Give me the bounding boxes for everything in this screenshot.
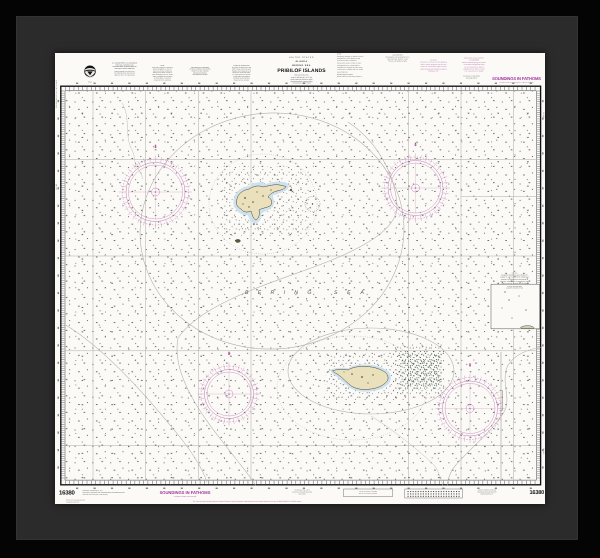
svg-text:NATIONAL OCEAN SERVICE: NATIONAL OCEAN SERVICE: [477, 492, 496, 494]
svg-text:Continued on chart 16381: Continued on chart 16381: [463, 75, 480, 78]
svg-text:NOAA: NOAA: [88, 81, 92, 83]
svg-text:Printed on recycled paper with: Printed on recycled paper with: [66, 500, 85, 502]
svg-text:RADIO AND LOCAL NOTICE: RADIO AND LOCAL NOTICE: [464, 57, 484, 60]
svg-text:BERING: BERING: [245, 290, 321, 296]
svg-text:16380: 16380: [542, 448, 545, 455]
svg-text:SOUNDINGS IN FATHOMS: SOUNDINGS IN FATHOMS: [191, 67, 209, 69]
svg-text:AT MEAN LOWER LOW WATER: AT MEAN LOWER LOW WATER: [174, 495, 197, 498]
svg-text:16380: 16380: [59, 490, 76, 497]
svg-text:vegetable based inks: vegetable based inks: [66, 502, 79, 504]
svg-text:SOUNDINGS IN FATHOMS: SOUNDINGS IN FATHOMS: [160, 490, 211, 495]
svg-text:First Edition Feb. 1977: First Edition Feb. 1977: [294, 489, 309, 492]
svg-text:This chart has been produced b: This chart has been produced by the Nati…: [193, 500, 302, 503]
svg-text:from the Coast Survey website: from the Coast Survey website: [359, 493, 378, 495]
svg-text:NOTE: NOTE: [337, 53, 341, 56]
svg-text:A list of corrections is avail: A list of corrections is available: [359, 491, 378, 493]
svg-text:16380: 16380: [542, 112, 545, 119]
svg-text:SOUNDINGS IN FATHOMS: SOUNDINGS IN FATHOMS: [492, 76, 541, 81]
svg-text:PLANE OF REFERENCE: PLANE OF REFERENCE: [233, 65, 249, 67]
svg-text:AUTHORITIES NOTED: AUTHORITIES NOTED: [192, 74, 207, 76]
svg-text:16380: 16380: [530, 490, 545, 496]
svg-text:SEA: SEA: [334, 290, 373, 296]
svg-text:UNITED STATES PRINTED: UNITED STATES PRINTED: [478, 490, 496, 492]
svg-text:CAUTION: CAUTION: [430, 59, 437, 62]
svg-text:MEAN HIGH WATER: MEAN HIGH WATER: [193, 72, 207, 74]
svg-text:16380: 16380: [55, 184, 58, 191]
svg-text:U.S. DEPARTMENT OF COMMERCE: U.S. DEPARTMENT OF COMMERCE: [112, 62, 137, 65]
svg-text:HEIGHTS IN FEET ABOVE: HEIGHTS IN FEET ABOVE: [191, 71, 209, 73]
svg-text:BERING SEA: BERING SEA: [292, 64, 311, 67]
svg-text:Chart prepared from surveys by: Chart prepared from surveys by: [114, 70, 134, 73]
svg-text:WASHINGTON D.C.: WASHINGTON D.C.: [480, 494, 494, 496]
svg-text:(numbers under ten and slopes: (numbers under ten and slopes in fathoms…: [499, 81, 534, 84]
svg-text:AUTHORITIES: AUTHORITIES: [392, 54, 402, 57]
svg-text:NOTE: NOTE: [161, 65, 165, 67]
svg-text:UNITED STATES: UNITED STATES: [289, 56, 314, 59]
svg-text:PRIBILOF ISLANDS: PRIBILOF ISLANDS: [277, 68, 326, 74]
svg-text:Published at Washington, D.C.: Published at Washington, D.C.: [83, 489, 104, 492]
svg-text:Mercator Projection: Mercator Projection: [295, 74, 309, 77]
svg-text:AT MEAN LOWER LOW WATER: AT MEAN LOWER LOW WATER: [189, 69, 210, 71]
svg-text:SOUNDINGS IN FATHOMS: SOUNDINGS IN FATHOMS: [55, 79, 58, 108]
svg-text:ALASKA: ALASKA: [295, 60, 307, 63]
